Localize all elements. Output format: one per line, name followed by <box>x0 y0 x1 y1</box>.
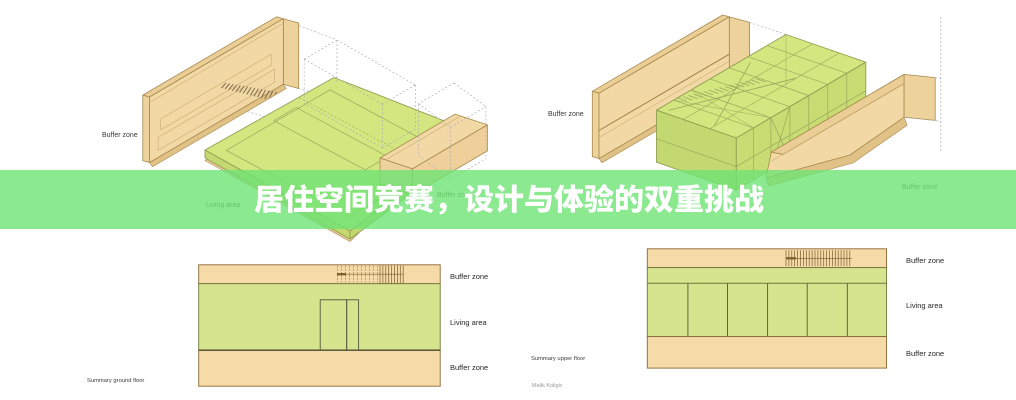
svg-text:Malik Koligic: Malik Koligic <box>532 383 563 389</box>
svg-text:Living area: Living area <box>450 318 488 327</box>
svg-text:Buffer zone: Buffer zone <box>450 363 488 372</box>
svg-text:Summary upper floor: Summary upper floor <box>531 356 585 362</box>
svg-text:Summary ground floor: Summary ground floor <box>87 378 144 384</box>
svg-text:Living area: Living area <box>906 301 944 310</box>
svg-text:Buffer zone: Buffer zone <box>906 349 944 358</box>
svg-text:Buffer zone: Buffer zone <box>906 256 944 265</box>
svg-text:Buffer zone: Buffer zone <box>450 272 488 281</box>
svg-text:Buffer zone: Buffer zone <box>548 111 584 118</box>
svg-text:Buffer zone: Buffer zone <box>102 132 138 139</box>
